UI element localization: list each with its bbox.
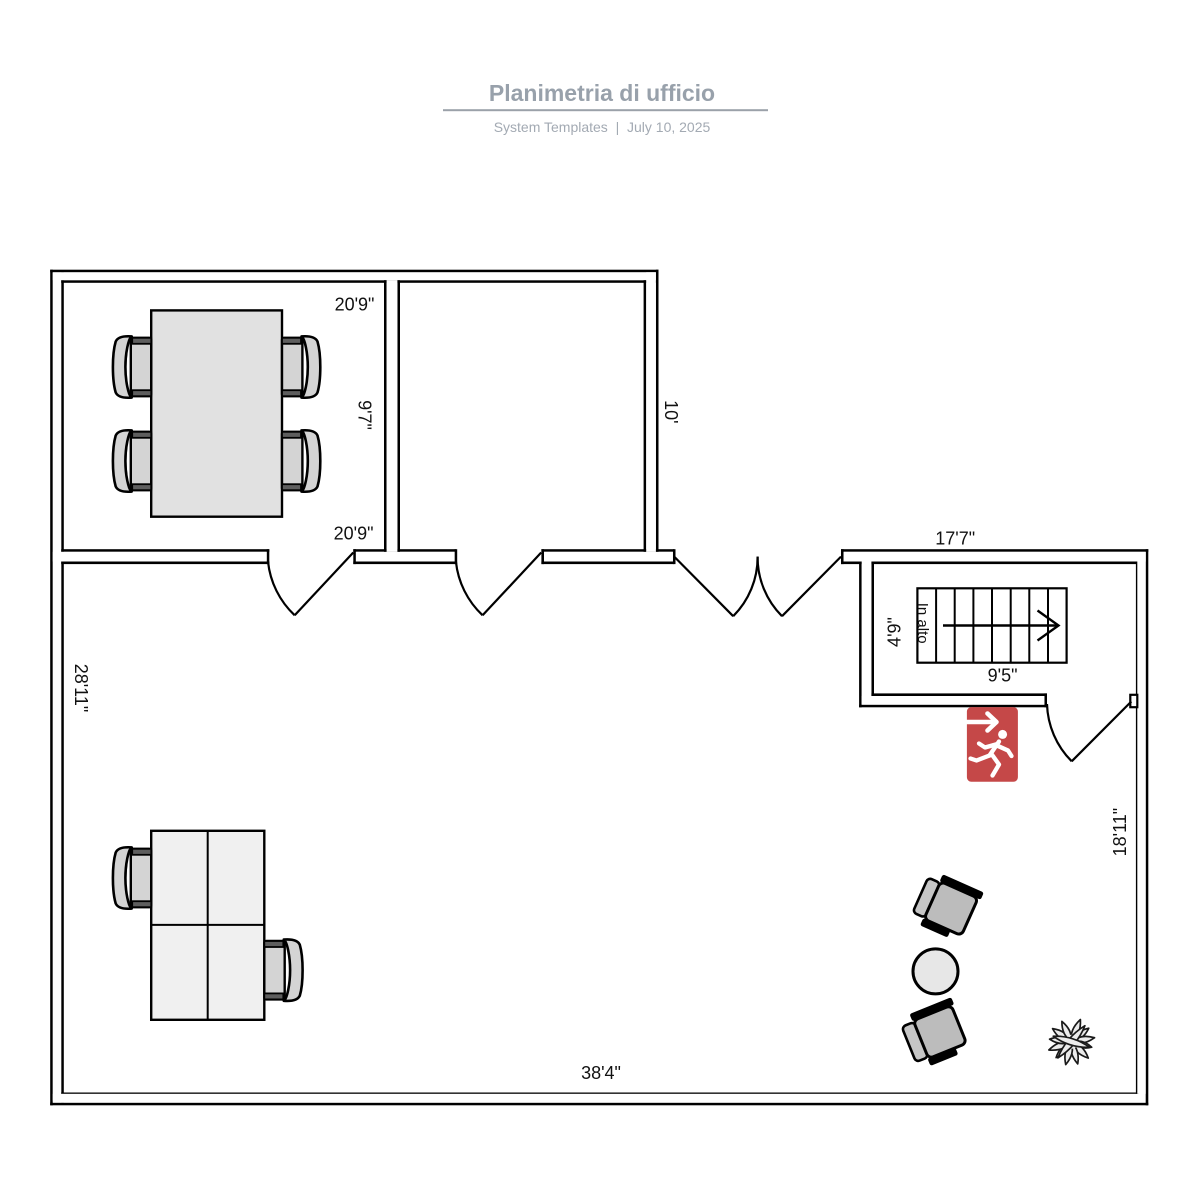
svg-text:10': 10'	[661, 400, 681, 423]
svg-text:20'9": 20'9"	[335, 295, 375, 315]
svg-text:Planimetria di ufficio: Planimetria di ufficio	[489, 80, 715, 106]
svg-text:9'7": 9'7"	[354, 400, 374, 430]
svg-text:28'11": 28'11"	[71, 664, 91, 713]
svg-text:18'11": 18'11"	[1110, 808, 1130, 857]
svg-text:In alto: In alto	[914, 603, 931, 644]
svg-text:System Templates | July 10,: System Templates | July 10, 2025	[494, 119, 711, 135]
svg-text:17'7": 17'7"	[935, 529, 975, 549]
svg-text:9'5": 9'5"	[988, 665, 1018, 685]
svg-text:4'9": 4'9"	[885, 617, 905, 647]
svg-text:38'4": 38'4"	[581, 1063, 621, 1083]
svg-text:20'9": 20'9"	[334, 524, 374, 544]
